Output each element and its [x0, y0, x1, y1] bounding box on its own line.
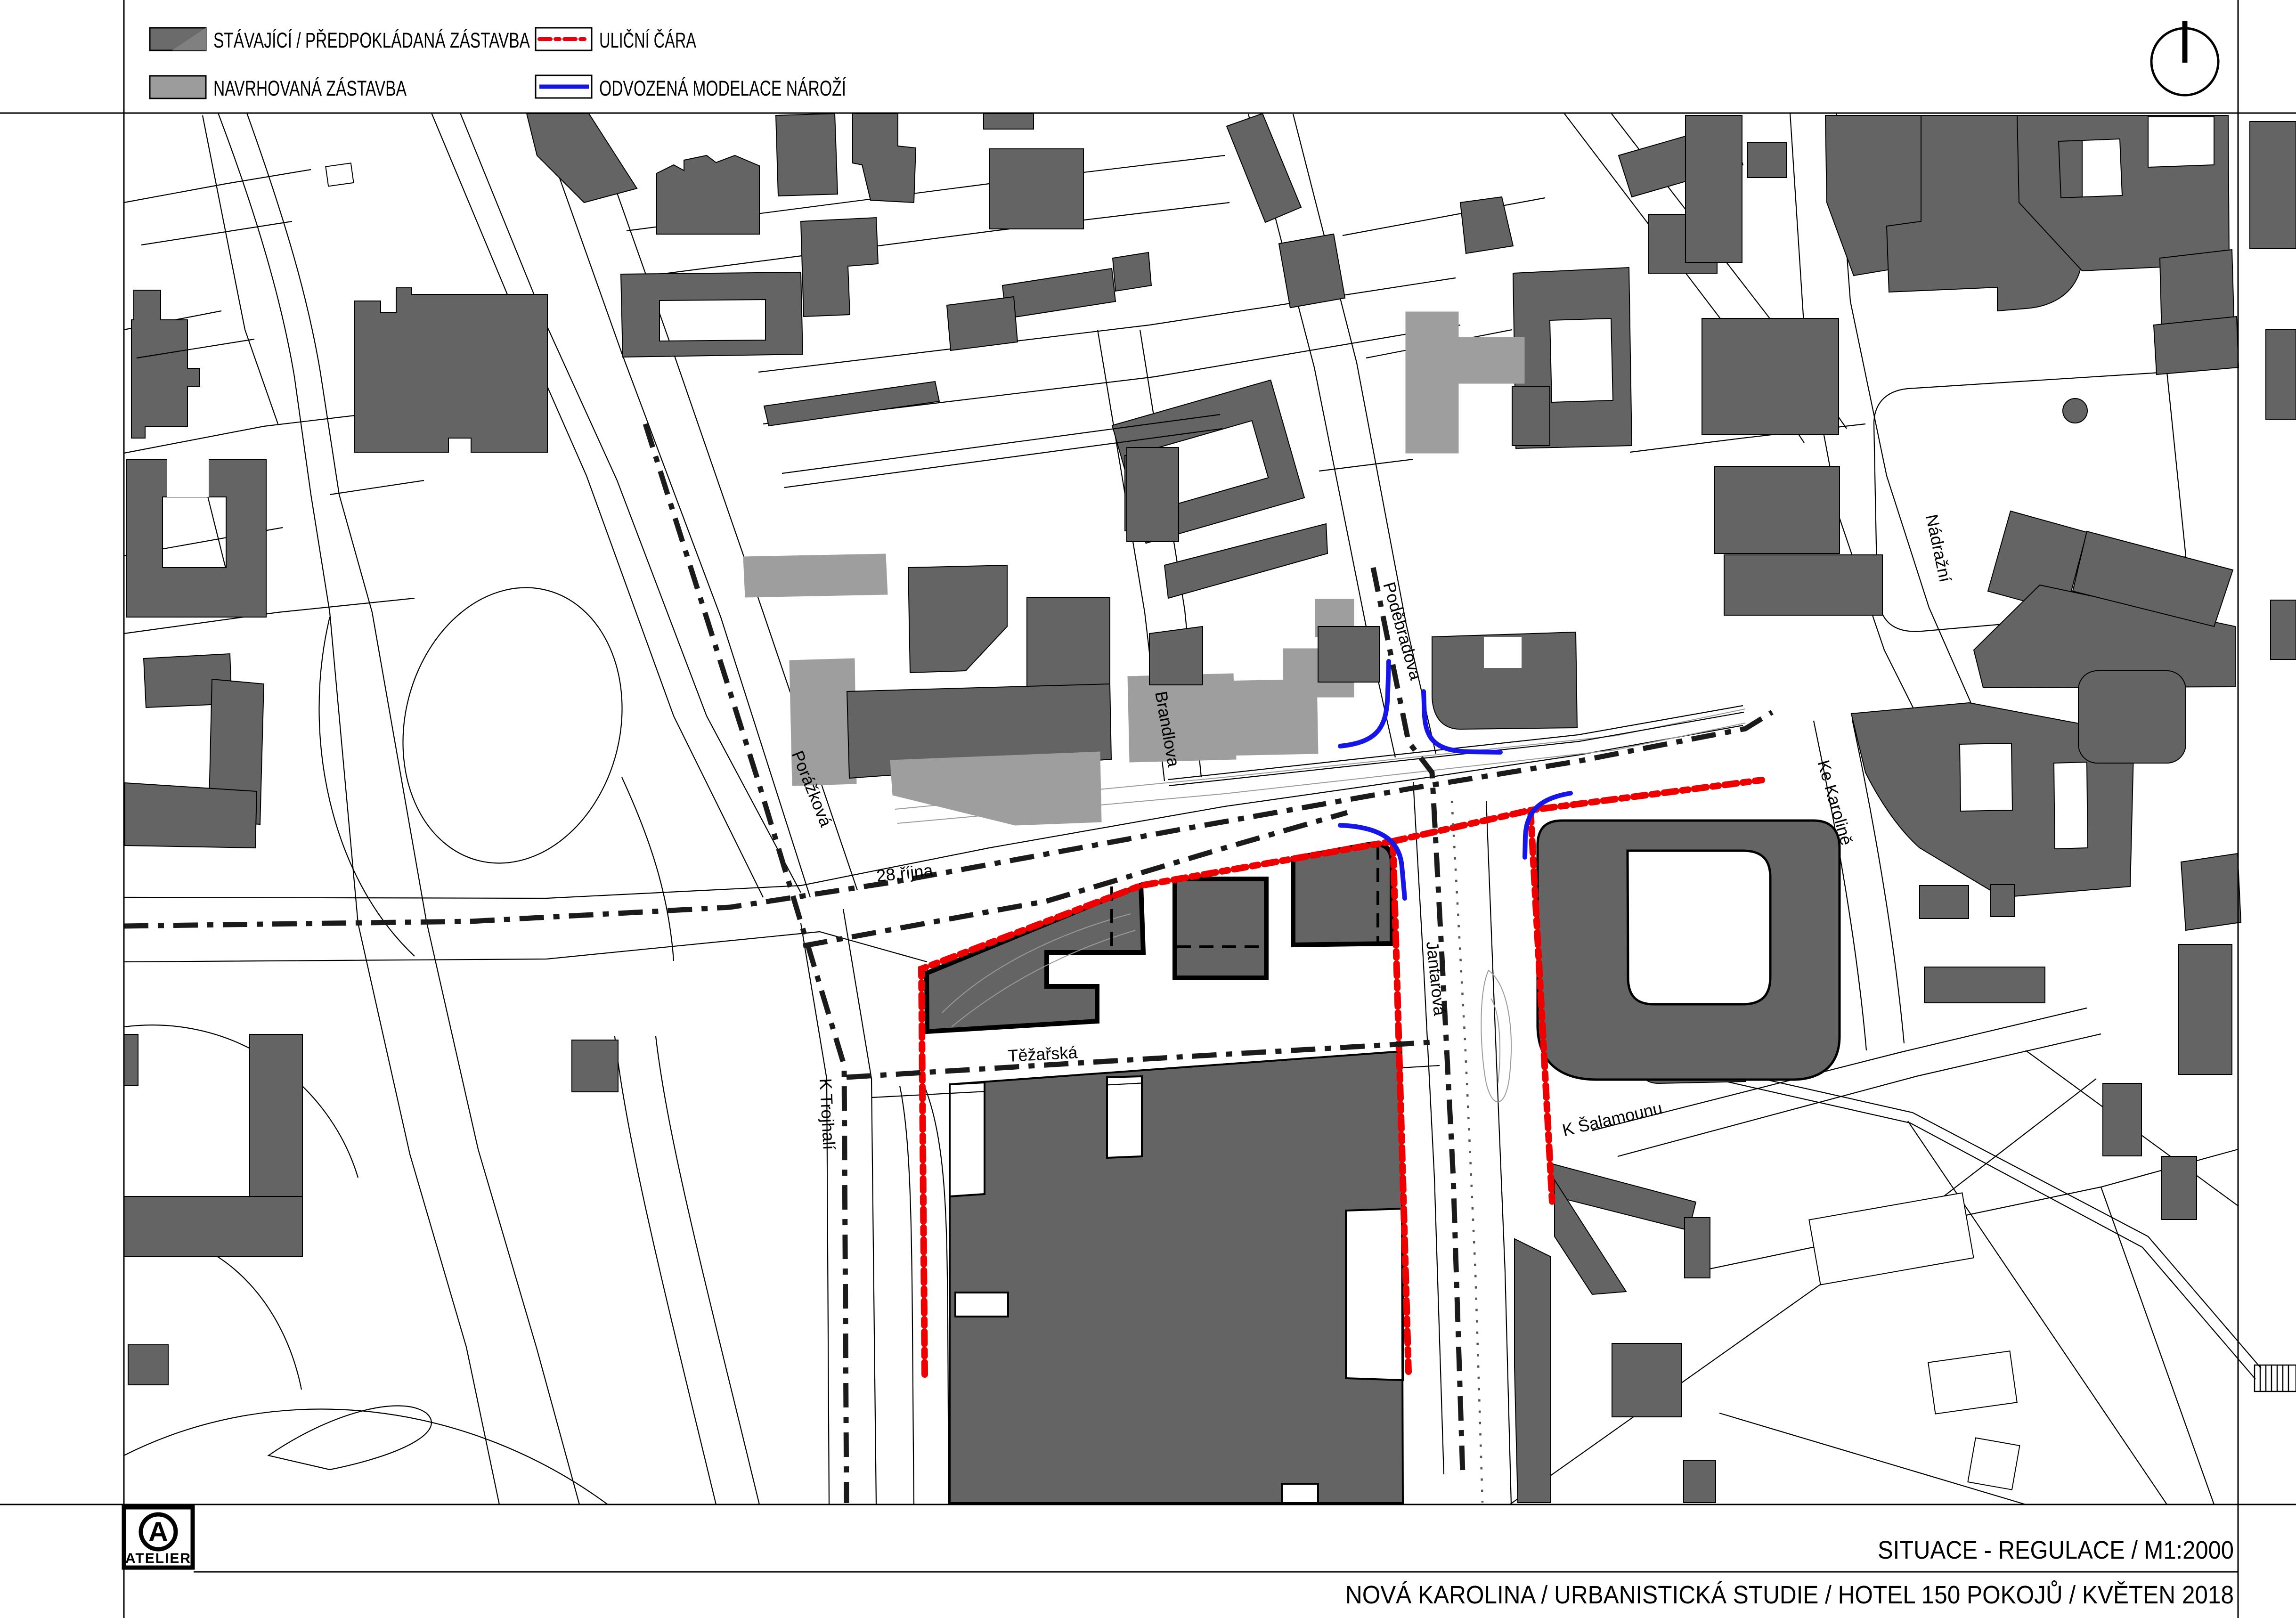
- svg-text:ULIČNÍ ČÁRA: ULIČNÍ ČÁRA: [599, 28, 696, 52]
- svg-text:NAVRHOVANÁ ZÁSTAVBA: NAVRHOVANÁ ZÁSTAVBA: [213, 76, 407, 100]
- svg-text:Těžařská: Těžařská: [1007, 1042, 1078, 1065]
- svg-text:A: A: [148, 1517, 168, 1547]
- svg-text:ATELIER: ATELIER: [125, 1551, 191, 1566]
- svg-text:K Trojhalí: K Trojhalí: [816, 1078, 839, 1150]
- svg-text:SITUACE - REGULACE / M1:2000: SITUACE - REGULACE / M1:2000: [1878, 1536, 2234, 1564]
- svg-text:ODVOZENÁ MODELACE NÁROŽÍ: ODVOZENÁ MODELACE NÁROŽÍ: [599, 76, 846, 100]
- svg-text:NOVÁ KAROLINA / URBANISTICKÁ S: NOVÁ KAROLINA / URBANISTICKÁ STUDIE / HO…: [1345, 1580, 2234, 1609]
- svg-text:STÁVAJÍCÍ / PŘEDPOKLÁDANÁ ZÁST: STÁVAJÍCÍ / PŘEDPOKLÁDANÁ ZÁSTAVBA: [213, 28, 530, 52]
